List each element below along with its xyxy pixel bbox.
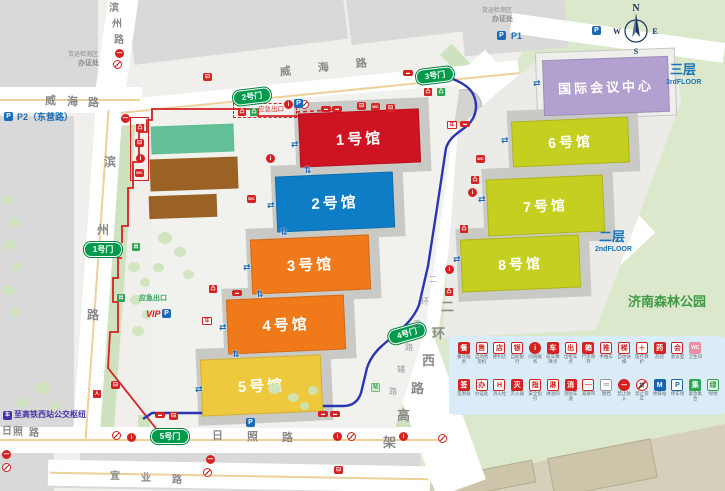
taxi-icon: 车 [447,121,457,129]
map-label: 济南森林公园 [628,295,706,308]
gate-1: 1号门 [84,242,122,257]
legend-label: 问询服务 [527,355,544,365]
legend-icon: 出 [565,342,577,354]
parking-icon: P [4,112,13,121]
legend-icon: M [654,379,666,391]
map-label: 滨 [104,156,116,168]
bus-icon: ⊟ [111,381,120,389]
legend-icon: 箱 [582,342,594,354]
map-label: 办证处 [78,60,99,67]
tree [132,326,144,336]
stop-bar-icon: ▬ [332,106,342,112]
legend-item: 绿绿地 [704,379,722,402]
info-icon: i [468,188,477,197]
hall-6: 6号馆 [511,116,630,167]
hall-4: 4号馆 [226,294,346,354]
map-label: 路 [87,309,99,321]
legend-icon: 银 [511,342,523,354]
legend-icon: — [582,379,594,391]
no-trucks-icon: ▪ [203,468,212,477]
legend-label: 停车场 [669,392,686,397]
map-label: 照 [13,428,23,438]
map-label: 路 [29,429,39,439]
hall-3: 3号馆 [250,234,371,294]
entrance-arrows-vertical-icon: ⇅ [256,290,264,299]
person-icon: 人 [93,390,101,398]
map-label: VIP [146,310,161,319]
conference-center: 国际会议中心 [542,56,670,116]
teal-yard [151,124,235,155]
checkin-red-icon: 凸 [238,108,246,116]
map-label: P2（东营路） [17,113,73,122]
checkin-red-icon: 凸 [136,124,144,132]
map-label: 西 [422,354,435,367]
stop-bar-icon: ▬ [232,290,242,296]
legend-icon: 绿 [707,379,719,391]
checkin-green-icon: 凸 [250,108,258,116]
legend-item: 药药店 [651,342,669,365]
legend-item: ＋医疗救护 [633,342,651,365]
brown-yard [149,194,218,219]
entrance-arrows-vertical-icon: ⇅ [232,350,240,359]
legend-label: 自助银行 [509,355,526,365]
entrance-arrows-vertical-icon: ⇅ [280,228,288,237]
stop-bar-icon: ▬ [460,121,470,127]
hall-4-label: 4号馆 [262,313,310,336]
restroom-icon: WC [476,155,485,163]
entrance-arrows-icon: ⇄ [453,255,461,264]
legend-label: 禁止货车 [633,392,650,402]
legend-row: 签签到处办办证处H消火栓灭灭火器指安全指引淋淋浴间消消防车道—减速带＝围挡－禁止… [455,379,722,402]
checkin-red-icon: 凸 [445,288,453,296]
checkin-red-icon: 凸 [471,176,479,184]
map-label: 路 [411,382,424,395]
no-entry-icon: － [121,114,130,123]
parking-icon: P [592,26,601,35]
gate-5: 5号门 [151,429,189,444]
map-label: 路 [114,36,124,46]
entrance-arrows-icon: ⇄ [478,195,486,204]
legend-label: 便利店 [491,355,508,360]
legend-label: 医疗救护 [633,355,650,365]
legend-label: 安全指引 [527,392,544,402]
legend-label: 地铁站 [651,392,668,397]
tree [158,232,172,244]
hall-8-label: 8号馆 [498,253,544,275]
map-label: 货运检测区 [482,8,512,14]
compass-icon: N W E S [612,2,660,56]
svg-text:W: W [613,27,621,36]
svg-text:N: N [632,3,640,14]
legend-icon: 店 [493,342,505,354]
map-label: 海 [67,97,78,108]
legend-item: 箱行李寄存 [580,342,598,365]
legend-label: 自动扶梯 [616,355,633,365]
legend-label: 班车乘降点 [544,355,561,365]
no-entry-icon: － [2,450,11,459]
hall-3-label: 3号馆 [286,253,334,276]
legend-item: 餐餐饮服务 [455,342,473,365]
legend-item: i问询服务 [526,342,544,365]
map-label: 辅 [397,366,405,374]
legend-item: 店便利店 [491,342,509,365]
legend-icon: P [671,379,683,391]
legend-label: 餐饮服务 [455,355,472,365]
legend-label: 消火栓 [491,392,508,397]
map-label: 路 [282,433,293,444]
legend-icon: 办 [476,379,488,391]
stop-bar-icon: ▬ [403,70,413,76]
no-trucks-icon: ▪ [2,463,11,472]
hall-7-label: 7号馆 [523,195,569,217]
legend-label: 紧急集合 [687,392,704,402]
legend-item: 推手推车 [597,342,615,365]
bus-icon: ⊟ [169,412,178,420]
map-label: 路 [405,344,413,352]
parking-icon: P [497,31,506,40]
entrance-arrows-icon: ⇄ [533,79,541,88]
hall-8: 8号馆 [460,234,581,292]
tree [140,278,150,287]
info-icon: i [333,432,342,441]
map-label: 照 [247,432,258,443]
info-icon: i [266,154,275,163]
info-icon: i [284,100,293,109]
legend-item: 售自动售货机 [473,342,491,365]
bus-hub-icon: 车 [3,411,12,420]
legend-item: 签签到处 [455,379,473,402]
legend-icon: 梯 [618,342,630,354]
legend-item: 指安全指引 [526,379,544,402]
map-label: 二层 [599,230,625,243]
brown-yard [149,156,238,191]
legend-icon: 签 [458,379,470,391]
legend-label: 会议室 [669,355,686,360]
map-label: 海 [317,62,329,74]
hall-1-label: 1号馆 [335,126,383,149]
checkin-red-icon: 凸 [460,225,468,233]
legend-label: 签到处 [455,392,472,397]
entrance-arrows-icon: ⇄ [219,323,227,332]
legend-label: 办证处 [473,392,490,397]
legend-label: 灭火器 [509,392,526,397]
map-label: 路 [88,98,99,109]
parking-icon: P [246,418,255,427]
map-label: 日 [212,431,223,442]
legend-item: P停车场 [669,379,687,402]
svg-text:S: S [634,47,639,56]
taxi-icon: 车 [202,317,212,325]
city-block [0,0,98,88]
legend-icon: 灭 [511,379,523,391]
entrance-arrows-icon: ⇄ [243,263,251,272]
legend-item: 淋淋浴间 [544,379,562,402]
entrance-arrows-icon: ⇄ [501,136,509,145]
map-label: 应急出口 [139,295,167,302]
legend-row: 餐餐饮服务售自动售货机店便利店银自助银行i问询服务车班车乘降点出出租车点箱行李寄… [455,342,704,365]
no-trucks-icon: ▪ [347,432,356,441]
info-icon: i [445,265,454,274]
legend-label: 绿地 [705,392,722,397]
map-label: 环 [432,327,445,340]
svg-text:E: E [652,27,657,36]
legend-label: 禁止驶入 [616,392,633,402]
map-label: 西 [413,321,421,329]
map-label: 滨 [109,4,119,14]
legend-label: 卫生间 [687,355,704,360]
stop-bar-icon: ▬ [321,106,331,112]
legend-icon: H [493,379,505,391]
legend-label: 自动售货机 [473,355,490,365]
legend-item: 消消防车道 [562,379,580,402]
legend-icon: － [618,379,630,391]
info-icon: i [127,433,136,442]
tree [268,383,281,394]
legend-item: 灭灭火器 [508,379,526,402]
legend-icon: WC [689,342,701,354]
legend-item: 车班车乘降点 [544,342,562,365]
emergency-exit-icon: 出 [132,243,140,251]
map-label: 2ndFLOOR [595,246,632,253]
no-entry-icon: － [115,49,124,58]
legend-icon: 集 [689,379,701,391]
legend-icon: ＋ [636,342,648,354]
legend-icon: 指 [529,379,541,391]
legend-icon: 货 [636,379,648,391]
legend-label: 围挡 [598,392,615,397]
map-label: 至高铁西站公交枢纽 [14,411,86,419]
legend-item: M地铁站 [651,379,669,402]
bus-icon: ⊟ [203,73,212,81]
entrance-arrows-icon: ⇄ [291,140,299,149]
entrance-arrows-icon: ⇄ [195,385,203,394]
bus-icon: ⊟ [135,139,144,147]
bus-icon: ⊟ [386,104,395,112]
legend-icon: 淋 [547,379,559,391]
tree [128,262,140,272]
map-label: 环 [421,298,429,306]
legend-item: 办办证处 [473,379,491,402]
checkin-red-icon: 凸 [209,285,217,293]
legend-label: 行李寄存 [580,355,597,365]
stop-bar-icon: ▬ [155,412,165,418]
legend-item: —减速带 [580,379,598,402]
info-icon: i [399,432,408,441]
hall-2-label: 2号馆 [311,190,359,213]
bus-icon: ⊟ [334,466,343,474]
tree [300,402,309,410]
legend-label: 药店 [651,355,668,360]
info-icon: i [136,154,145,163]
map-label: 架 [383,436,396,449]
map-label: 路 [389,388,397,396]
legend-item: 会会议室 [669,342,687,365]
legend-item: 货禁止货车 [633,379,651,402]
city-block [345,0,468,45]
stop-bar-icon: ▬ [330,411,340,417]
legend-label: 消防车道 [562,392,579,402]
emergency-exit-icon: 出 [117,294,125,302]
map-label: 3rdFLOOR [666,79,701,86]
legend-label: 淋浴间 [544,392,561,397]
legend-icon: 药 [654,342,666,354]
legend-item: WC卫生间 [686,342,704,365]
checkin-red-icon: 凸 [424,88,432,96]
legend-icon: i [529,342,541,354]
hall-6-label: 6号馆 [548,131,594,153]
legend-icon: 消 [565,379,577,391]
legend-icon: ＝ [600,379,612,391]
legend-icon: 推 [600,342,612,354]
map-label: 威 [279,66,291,78]
legend-label: 手推车 [598,355,615,360]
conference-center-label: 国际会议中心 [558,75,655,97]
map-label: 办证处 [492,16,513,23]
map-label: 二 [429,276,437,284]
stop-bar-icon: ▬ [318,411,328,417]
map-label: 路 [355,58,367,70]
parking-icon: P [294,99,303,108]
legend-item: －禁止驶入 [615,379,633,402]
no-entry-icon: － [206,455,215,464]
legend-label: 出租车点 [562,355,579,365]
map-label: 州 [97,224,109,236]
map-label: 业 [141,474,151,484]
legend-icon: 会 [671,342,683,354]
map-label: 州 [112,20,122,30]
hall-1: 1号馆 [298,108,421,167]
legend-item: 集紧急集合 [686,379,704,402]
parking-icon: P [162,309,171,318]
legend-item: 出出租车点 [562,342,580,365]
restroom-icon: WC [371,103,380,111]
legend-icon: 餐 [458,342,470,354]
map-label: 宜 [110,472,120,482]
legend-item: 银自助银行 [508,342,526,365]
no-trucks-icon: ▪ [113,60,122,69]
map-label: 货运检测区 [68,52,98,58]
legend-item: H消火栓 [491,379,509,402]
map-label: 威 [45,96,56,107]
tree [10,308,20,317]
checkin-green-icon: 凸 [437,88,445,96]
hall-2: 2号馆 [275,171,395,232]
tree [36,382,50,394]
legend-item: 梯自动扶梯 [615,342,633,365]
tree [12,262,22,271]
map-label: 应急出口 [258,107,284,114]
hall-7: 7号馆 [486,174,605,236]
bus-icon: ⊟ [357,102,366,110]
map-label: P1 [511,32,522,41]
city-block [127,0,348,65]
legend-icon: 售 [476,342,488,354]
map-label: 高 [397,409,410,422]
no-trucks-icon: ▪ [438,434,447,443]
map-label: 二 [441,300,454,313]
tree [308,386,318,395]
restroom-icon: WC [247,195,256,203]
tree [10,218,20,227]
map-label: 路 [172,476,182,486]
entrance-arrows-vertical-icon: ⇅ [304,166,312,175]
map-label: 日 [2,427,12,437]
restroom-icon: WC [135,169,144,177]
bus-stop-icon: 站 [371,383,380,392]
legend-icon: 车 [547,342,559,354]
entrance-arrows-icon: ⇄ [267,201,275,210]
no-trucks-icon: ▪ [112,431,121,440]
exhibition-center-map: 1号馆2号馆3号馆4号馆5号馆6号馆7号馆8号馆国际会议中心 －▪－i▪⊟▬凸凸… [0,0,725,491]
legend-item: ＝围挡 [597,379,615,402]
map-label: 三层 [670,63,696,76]
legend-label: 减速带 [580,392,597,397]
